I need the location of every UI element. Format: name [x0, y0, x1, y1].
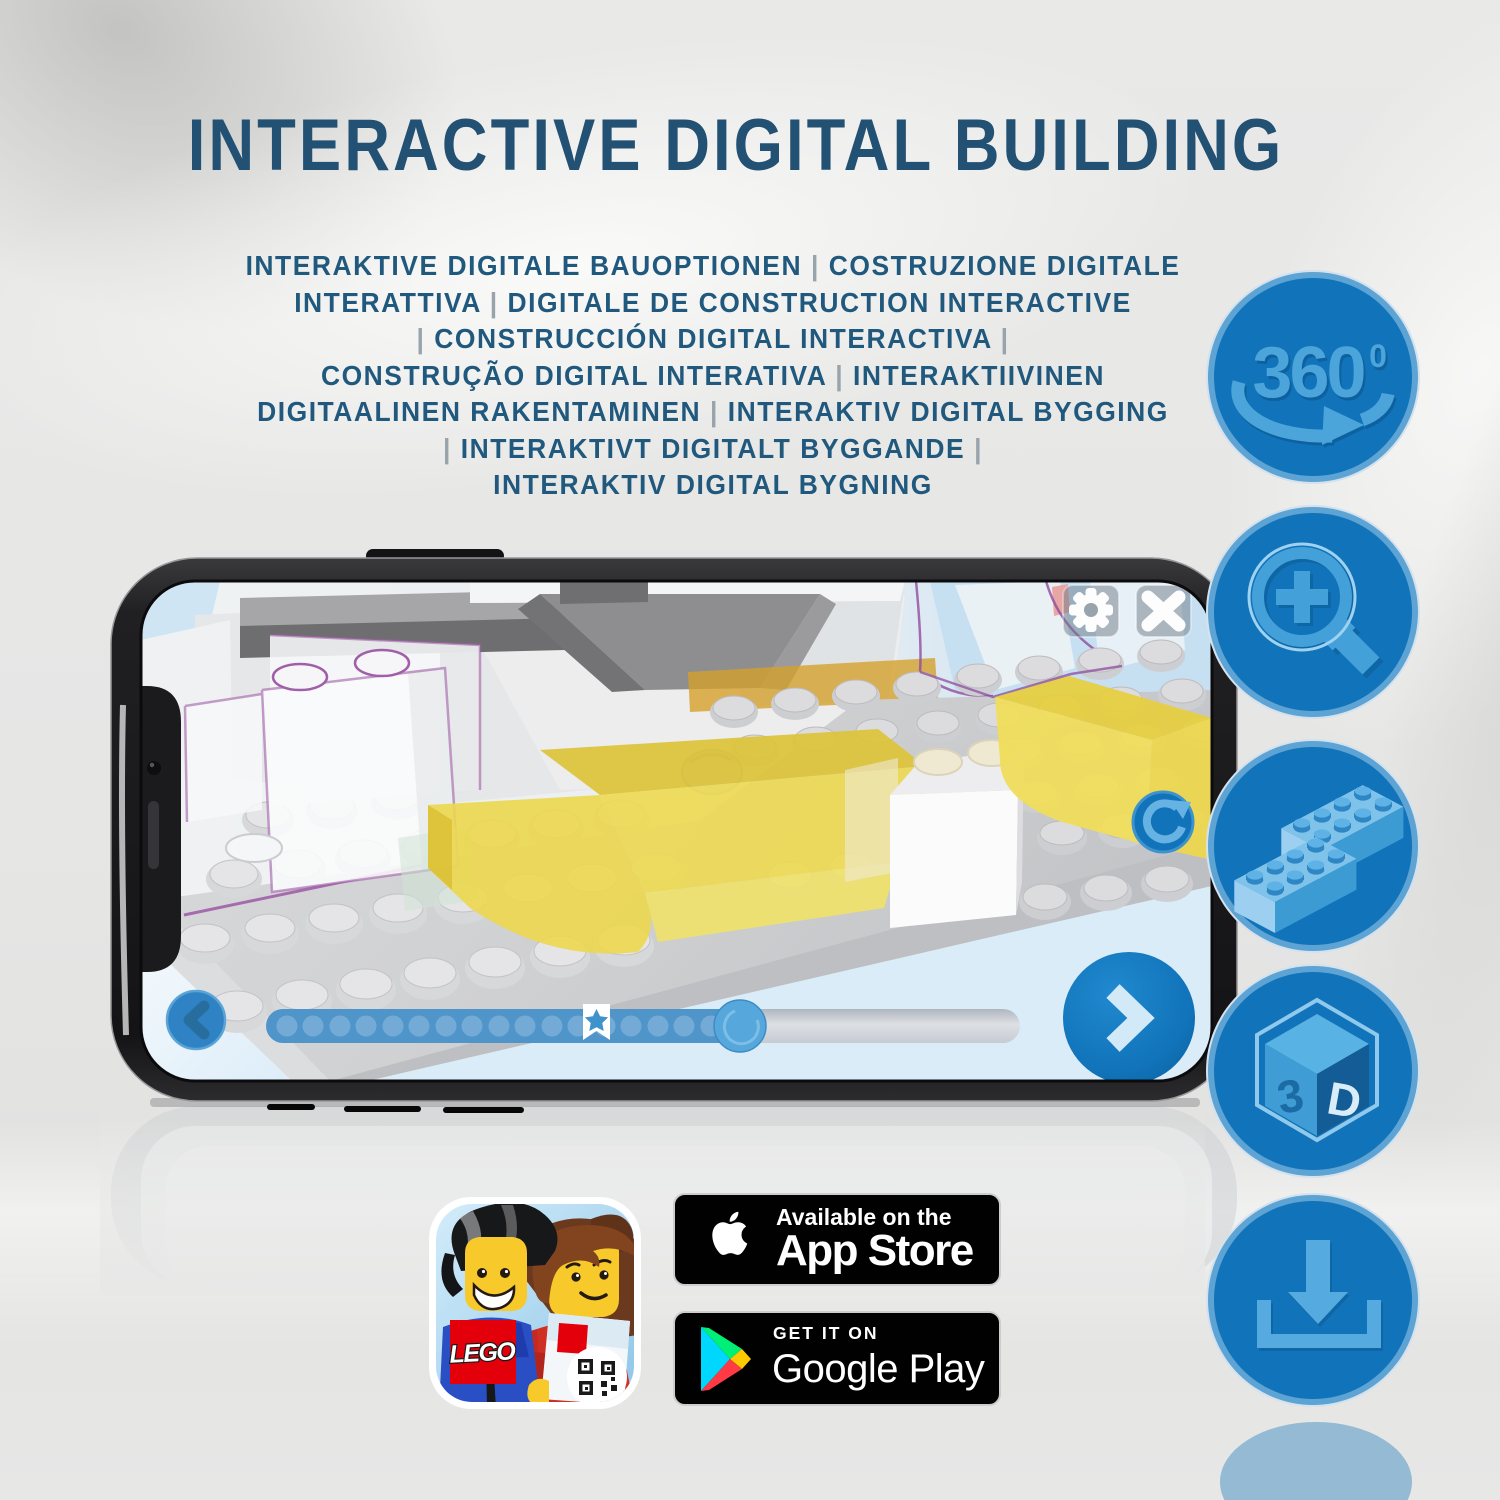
svg-text:360: 360 [1252, 333, 1364, 413]
svg-text:0: 0 [1369, 338, 1387, 374]
svg-text:LEGO: LEGO [449, 1337, 517, 1368]
